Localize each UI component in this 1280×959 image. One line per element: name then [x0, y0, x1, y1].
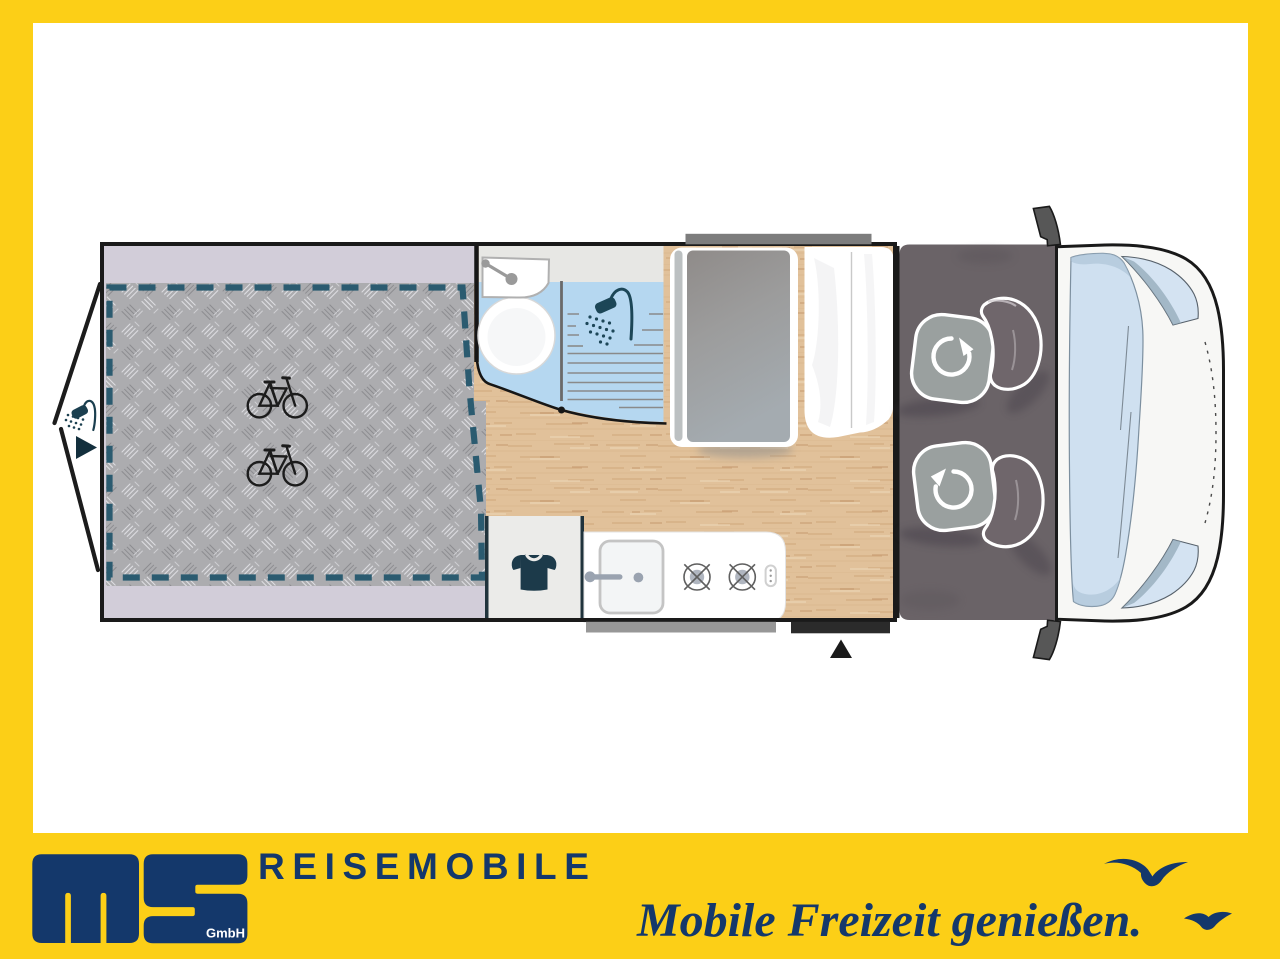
svg-text:GmbH: GmbH — [206, 926, 245, 941]
svg-text:Mobile Freizeit genießen.: Mobile Freizeit genießen. — [636, 894, 1142, 947]
svg-text:REISEMOBILE: REISEMOBILE — [258, 846, 597, 887]
